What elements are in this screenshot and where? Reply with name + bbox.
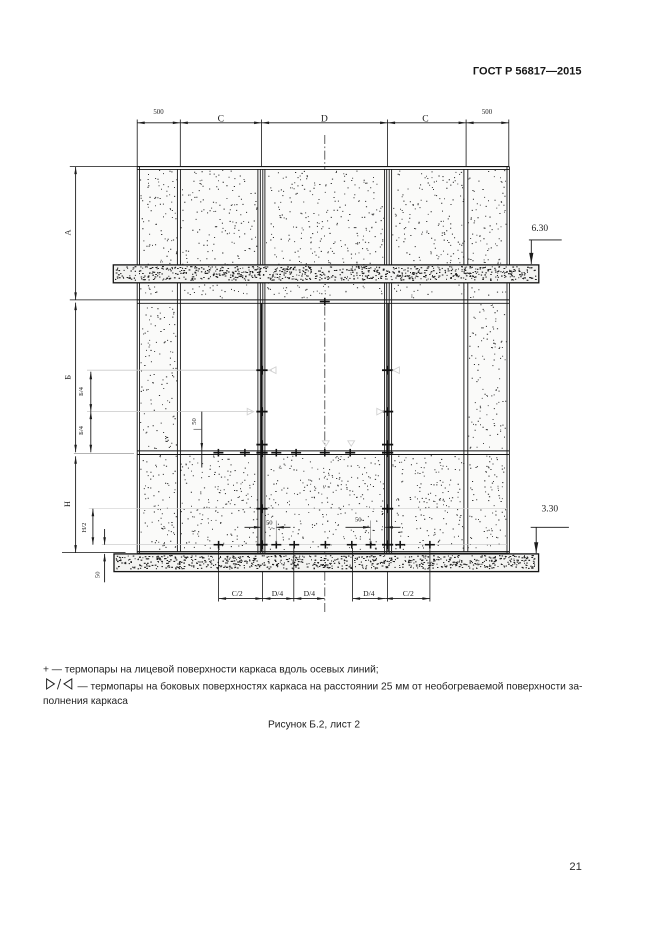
svg-text:+ — термопары на лицевой повер: + — термопары на лицевой поверхности кар… bbox=[43, 664, 379, 675]
svg-text:ГОСТ Р 56817—2015: ГОСТ Р 56817—2015 bbox=[473, 66, 582, 78]
svg-text:Б: Б bbox=[63, 375, 72, 380]
svg-text:D/4: D/4 bbox=[304, 589, 316, 598]
svg-text:D/4: D/4 bbox=[363, 589, 375, 598]
svg-text:500: 500 bbox=[482, 109, 493, 116]
svg-text:Н: Н bbox=[63, 501, 72, 507]
svg-text:A: A bbox=[63, 229, 72, 235]
svg-text:50: 50 bbox=[191, 418, 198, 425]
svg-text:полнения каркаса: полнения каркаса bbox=[43, 696, 128, 707]
svg-text:C: C bbox=[422, 113, 428, 124]
svg-text:C: C bbox=[218, 113, 224, 124]
svg-text:Б/4: Б/4 bbox=[78, 386, 85, 396]
svg-text:50: 50 bbox=[266, 519, 273, 526]
svg-text:6.30: 6.30 bbox=[531, 224, 548, 234]
svg-text:Рисунок Б.2, лист 2: Рисунок Б.2, лист 2 bbox=[268, 720, 360, 731]
svg-text:500: 500 bbox=[153, 109, 164, 116]
svg-text:21: 21 bbox=[569, 861, 581, 873]
svg-text:3.30: 3.30 bbox=[541, 504, 558, 514]
svg-text:Н/2: Н/2 bbox=[81, 523, 88, 533]
svg-text:C/2: C/2 bbox=[232, 589, 243, 598]
svg-text:D/4: D/4 bbox=[272, 589, 284, 598]
svg-text:50: 50 bbox=[95, 571, 102, 578]
svg-text:C/2: C/2 bbox=[403, 589, 414, 598]
svg-text:Б/4: Б/4 bbox=[78, 425, 85, 435]
svg-text:D: D bbox=[321, 113, 328, 124]
svg-text:50: 50 bbox=[355, 516, 362, 523]
svg-text:— термопары на боковых поверхн: — термопары на боковых поверхностях карк… bbox=[78, 681, 583, 693]
